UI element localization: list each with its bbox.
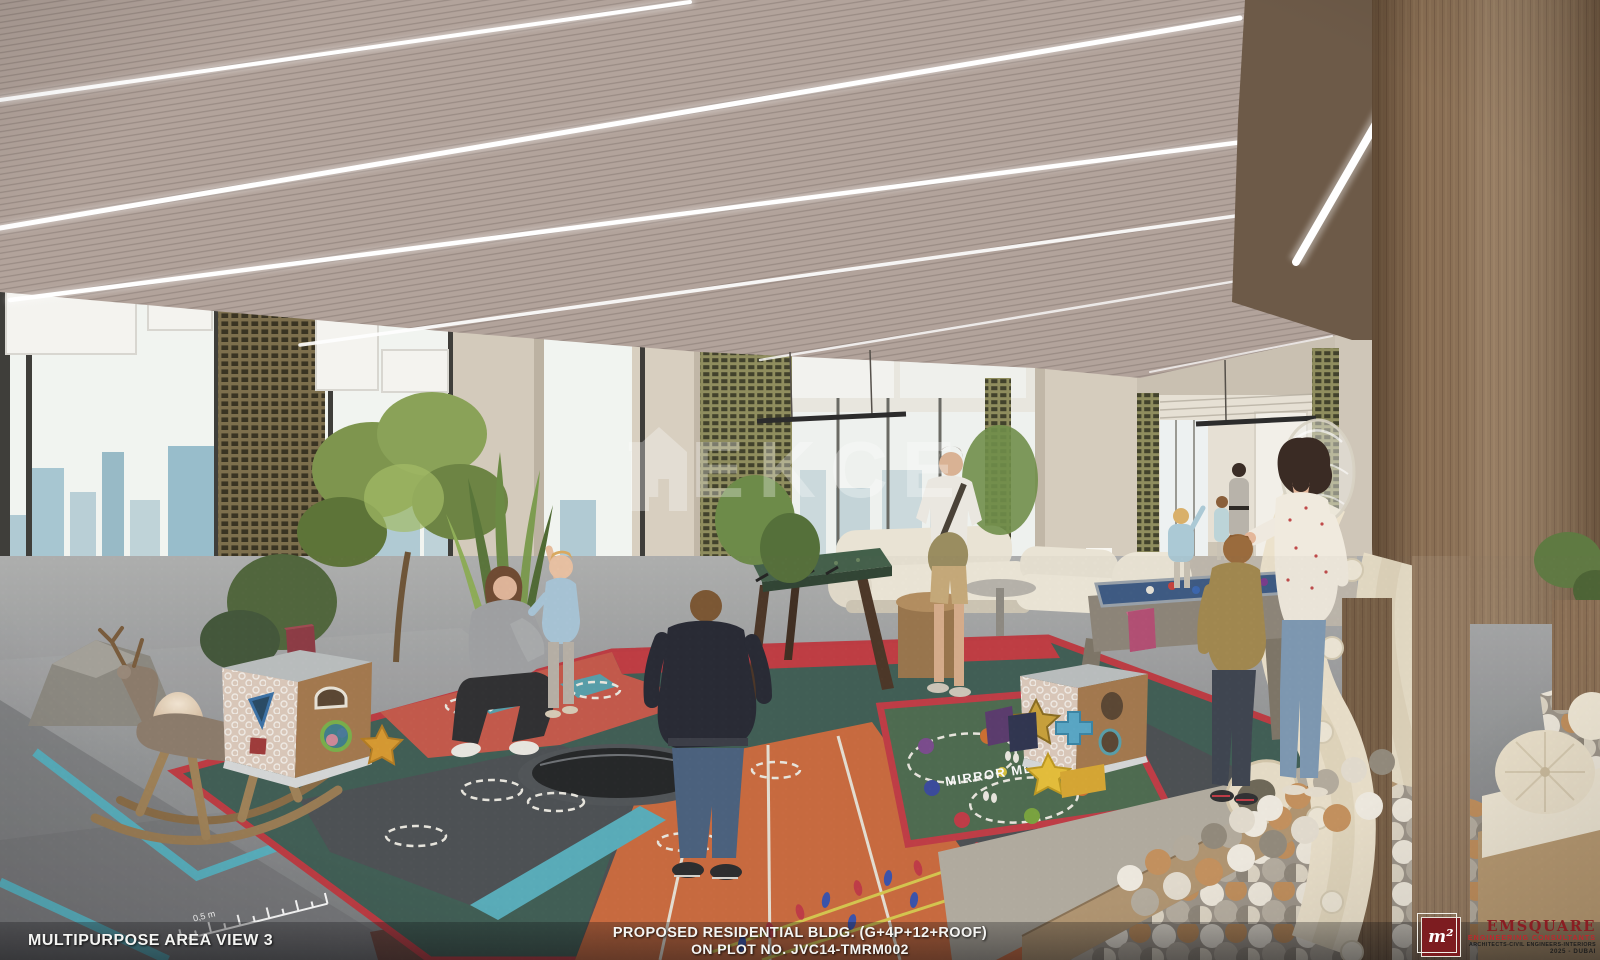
consultant-logo: m² EMSQUARE ENGINEERING CONSULTANTS ARCH…	[1421, 917, 1596, 957]
footer-band: MULTIPURPOSE AREA VIEW 3 PROPOSED RESIDE…	[0, 922, 1600, 960]
project-caption-line1: PROPOSED RESIDENTIAL BLDG. (G+4P+12+ROOF…	[0, 925, 1600, 941]
project-caption: PROPOSED RESIDENTIAL BLDG. (G+4P+12+ROOF…	[0, 925, 1600, 957]
logo-name: EMSQUARE	[1486, 919, 1596, 935]
logo-monogram: m²	[1421, 917, 1461, 957]
render-canvas: 0,5 m MIRROR ME	[0, 0, 1600, 960]
scene: 0,5 m MIRROR ME	[0, 0, 1600, 960]
logo-symbol: m²	[1428, 927, 1453, 947]
project-caption-line2: ON PLOT NO. JVC14-TMRM002	[0, 941, 1600, 957]
logo-year-city: 2025 - DUBAI	[1550, 949, 1596, 956]
